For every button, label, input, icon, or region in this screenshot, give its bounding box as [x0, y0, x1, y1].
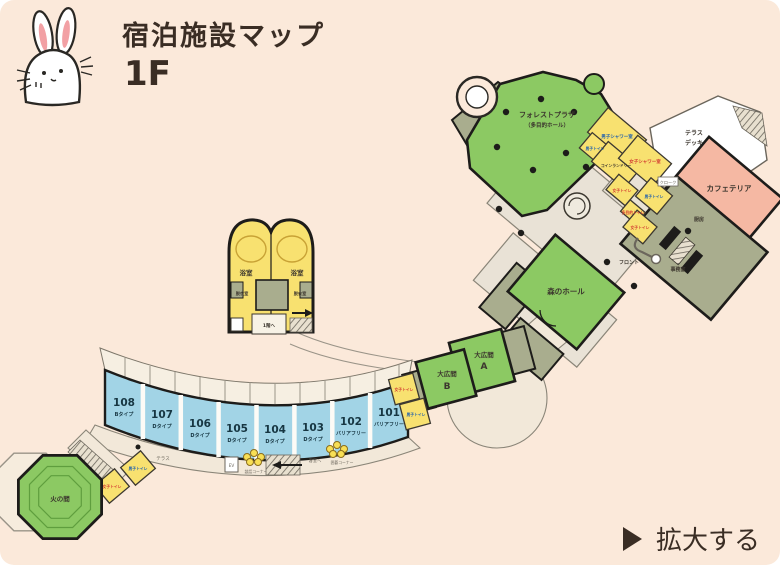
- room-101-number: 101: [378, 407, 400, 419]
- forest-plaza-label-1: フォレストプラザ: [519, 110, 575, 119]
- forest-hall-label: 森のホール: [547, 286, 585, 296]
- cloak: クローク: [658, 177, 678, 186]
- rabbit-whiskers-right: [80, 57, 93, 75]
- floor-map: テラス デッキ フォレストプラザ （多目的ホール） カフェテリア: [0, 0, 780, 565]
- room-102-number: 102: [340, 416, 362, 428]
- go-corner-label: 囲碁コーナー: [331, 460, 354, 465]
- multipurpose-toilet-label: 多目的トイレ: [622, 210, 645, 215]
- room-101-type: バリアフリー: [374, 421, 404, 428]
- mens-toilet-mid-label: 男子トイレ: [644, 194, 664, 199]
- terrace-deck-label-1: テラス: [685, 130, 703, 137]
- mens-toilet-upper-label: 男子トイレ: [585, 146, 605, 151]
- room-106-number: 106: [189, 418, 211, 430]
- bath-right-label: 浴室: [291, 268, 305, 277]
- room-106-type: Dタイプ: [190, 432, 210, 439]
- elevator-label: EV: [229, 463, 235, 468]
- kitchen-label: 厨房: [694, 216, 704, 223]
- womens-toilet-wing-label: 女子トイレ: [395, 387, 414, 392]
- cafeteria-label: カフェテリア: [707, 184, 752, 193]
- terrace-label: テラス: [156, 456, 170, 462]
- rabbit-illustration: [17, 7, 93, 105]
- accommodation-map-page: 宿泊施設マップ 1F テ: [0, 0, 780, 565]
- womens-toilet-upper-label: 女子トイレ: [613, 188, 632, 193]
- front-label: フロント: [619, 260, 639, 266]
- enlarge-arrow-icon: [623, 527, 642, 551]
- hall-b-label: 大広間: [437, 369, 457, 378]
- fire-room-label: 火の間: [50, 494, 70, 503]
- enlarge-label: 拡大する: [656, 520, 760, 557]
- talk-corner-label: 談話コーナー: [245, 469, 268, 474]
- hall-b-letter: B: [444, 382, 451, 392]
- enlarge-link[interactable]: 拡大する: [623, 520, 760, 557]
- coin-laundry-label: コインランドリー: [601, 163, 632, 168]
- room-103-type: Dタイプ: [303, 436, 323, 443]
- womens-shower-label: 女子シャワー室: [629, 158, 661, 165]
- forest-plaza-label-2: （多目的ホール）: [525, 121, 569, 129]
- spiral-staircase: [564, 193, 590, 219]
- rabbit-body: [25, 50, 80, 105]
- dressing-left-label: 脱衣室: [236, 290, 249, 297]
- room-107-type: Dタイプ: [152, 423, 172, 430]
- mens-toilet-sw-label: 男子トイレ: [128, 466, 148, 471]
- to-guestroom-label: 客室へ: [309, 457, 322, 464]
- hall-a-label: 大広間: [474, 350, 494, 359]
- mens-toilet-wing-label: 男子トイレ: [406, 412, 426, 417]
- mens-shower-label: 男子シャワー室: [601, 133, 633, 140]
- bath-building: 浴室 浴室 脱衣室 脱衣室 1階へ: [229, 220, 313, 334]
- room-104-type: Dタイプ: [265, 438, 285, 445]
- bath-left-label: 浴室: [240, 268, 254, 277]
- dressing-right-label: 脱衣室: [294, 290, 307, 297]
- womens-toilet-mid-label: 女子トイレ: [631, 225, 650, 230]
- bath-stairs: [290, 318, 312, 332]
- room-105-number: 105: [226, 423, 248, 435]
- hall-a-letter: A: [481, 362, 488, 372]
- room-105-type: Dタイプ: [227, 437, 247, 444]
- office-label: 事務室: [670, 266, 685, 273]
- room-107-number: 107: [151, 409, 173, 421]
- room-103-number: 103: [302, 422, 324, 434]
- room-102-type: バリアフリー: [336, 430, 366, 437]
- room-108-type: Bタイプ: [115, 411, 135, 418]
- to-1f-label: 1階へ: [263, 322, 276, 329]
- room-104-number: 104: [264, 424, 286, 436]
- room-108-number: 108: [113, 397, 135, 409]
- womens-toilet-sw-label: 女子トイレ: [103, 484, 122, 489]
